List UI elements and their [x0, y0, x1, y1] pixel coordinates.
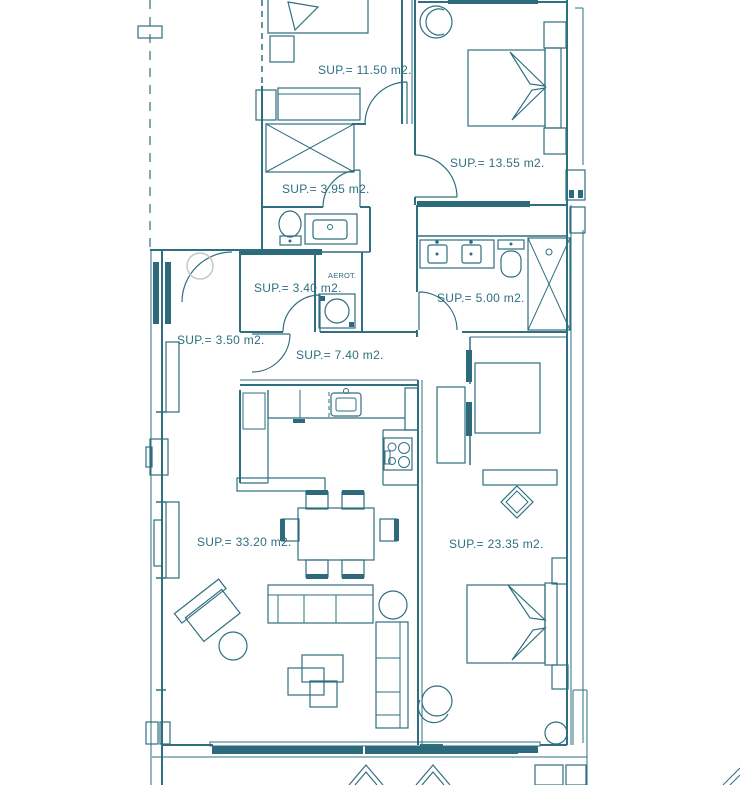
toilet-button — [510, 243, 513, 246]
bathroom2-fixtures — [420, 238, 570, 330]
toilet-button — [289, 240, 292, 243]
exterior-unit-foot — [578, 190, 583, 198]
terrace-table — [535, 765, 563, 785]
right-facade-line — [575, 8, 583, 743]
nightstand — [544, 128, 566, 154]
cooktop — [384, 438, 412, 470]
burner — [399, 457, 410, 468]
cabinet — [256, 90, 276, 120]
armchair — [422, 686, 452, 716]
label-hall: SUP.= 7.40 m2. — [296, 348, 384, 362]
exterior-unit-foot — [569, 190, 574, 198]
nightstand — [270, 36, 294, 62]
entry-door-panel — [165, 262, 171, 324]
shower-drain — [546, 249, 552, 255]
terrace-corner-lines — [723, 768, 740, 785]
chaise — [376, 622, 408, 728]
toilet-bowl — [279, 211, 301, 237]
unit-corner — [320, 296, 325, 301]
terrace-paving-diamond — [349, 765, 383, 785]
nightstand — [552, 665, 568, 689]
burner — [388, 443, 396, 451]
label-bedroom3: SUP.= 23.35 m2. — [449, 537, 544, 551]
burner — [399, 443, 410, 454]
exterior-unit2 — [570, 207, 585, 233]
fridge — [243, 393, 265, 429]
label-bathroom1: SUP.= 3.40 m2. — [254, 281, 342, 295]
label-bedroom2: SUP.= 13.55 m2. — [450, 156, 545, 170]
terrace-elements — [210, 742, 740, 785]
drain — [328, 225, 333, 230]
label-aerot: AEROT. — [328, 271, 356, 280]
terrace-right-wall — [573, 690, 587, 785]
ceiling-light — [187, 253, 213, 279]
bookcase — [166, 502, 179, 578]
walk-in-closet — [475, 363, 540, 433]
sliding-door-glass — [212, 746, 363, 754]
faucet — [469, 240, 473, 244]
handle — [293, 419, 305, 423]
headboard — [545, 48, 561, 128]
label-distributor: SUP.= 3.95 m2. — [282, 182, 370, 196]
label-bedroom1: SUP.= 11.50 m2. — [318, 63, 412, 77]
sideboard — [237, 478, 325, 491]
chair-back — [306, 574, 328, 579]
pillow — [288, 2, 318, 30]
label-living: SUP.= 33.20 m2. — [197, 535, 292, 549]
sofa-cushions — [268, 595, 373, 623]
pillow — [512, 628, 545, 660]
bedroom1-furniture — [256, 0, 368, 172]
nightstand — [544, 22, 566, 48]
pillow — [512, 88, 545, 120]
entry-door-panel — [153, 262, 159, 324]
terrace-chair — [566, 765, 586, 785]
chaise-cushions — [376, 622, 400, 728]
double-vanity — [420, 240, 494, 268]
sliding-door-panel — [466, 350, 472, 382]
bedroom2-furniture — [420, 6, 566, 154]
pillow — [510, 52, 545, 86]
left-window — [154, 520, 162, 566]
sliding-door-panel — [466, 402, 472, 436]
wardrobe-front-band — [417, 201, 530, 207]
left-counter — [240, 390, 268, 483]
dresser — [483, 470, 557, 485]
bedroom1-door — [365, 82, 407, 124]
sofa — [268, 585, 373, 623]
single-bed — [268, 0, 368, 33]
chair-back — [394, 519, 399, 541]
floor-plan-canvas: SUP.= 11.50 m2. SUP.= 13.55 m2. SUP.= 3.… — [0, 0, 740, 785]
bookcase — [166, 342, 179, 412]
double-bed — [467, 585, 545, 663]
label-bathroom2: SUP.= 5.00 m2. — [437, 291, 525, 305]
double-bed — [468, 50, 545, 126]
armchair-rotated — [174, 579, 243, 645]
bedroom2-window-band — [448, 0, 538, 4]
kitchen-sink-basin — [336, 398, 356, 411]
toilet-bowl — [501, 251, 521, 277]
drain — [436, 253, 439, 256]
nightstand — [552, 558, 567, 584]
bedroom3-furniture — [418, 363, 568, 744]
floor-plan-drawing: SUP.= 11.50 m2. SUP.= 13.55 m2. SUP.= 3.… — [0, 0, 740, 785]
kitchen-left-wall — [240, 332, 252, 483]
armchair-back — [426, 9, 444, 35]
dining-table — [298, 508, 374, 560]
chair-back — [342, 490, 364, 495]
wardrobe-cross — [266, 124, 354, 172]
drain — [470, 253, 473, 256]
label-entry: SUP.= 3.50 m2. — [177, 333, 265, 347]
bedroom3-window-glass — [445, 746, 491, 753]
wardrobe — [437, 387, 465, 463]
tall-cabinet — [405, 388, 418, 430]
pillar — [146, 722, 158, 744]
dresser — [278, 88, 360, 120]
sliding-door-frame — [210, 742, 540, 746]
cooktop-controls — [385, 451, 390, 464]
heat-pump-drum — [325, 299, 349, 323]
wall-projection — [150, 439, 168, 475]
shower-cross — [528, 238, 570, 330]
headboard — [545, 583, 557, 665]
side-table — [379, 591, 407, 619]
terrace-paving-diamond — [416, 765, 450, 785]
plant — [545, 722, 567, 744]
armchair-back — [174, 579, 226, 623]
chair-back — [342, 574, 364, 579]
chair-back — [306, 490, 328, 495]
faucet — [435, 240, 439, 244]
bathroom1-fixtures — [279, 211, 357, 328]
bedroom3-window-glass — [493, 746, 538, 753]
walls — [138, 0, 587, 785]
pillow — [508, 585, 545, 620]
armchair — [420, 6, 452, 38]
armchair-seat — [185, 589, 240, 641]
side-table — [219, 632, 247, 660]
room-labels: SUP.= 11.50 m2. SUP.= 13.55 m2. SUP.= 3.… — [177, 63, 545, 551]
kitchen — [240, 388, 418, 485]
unit-corner — [349, 322, 354, 327]
